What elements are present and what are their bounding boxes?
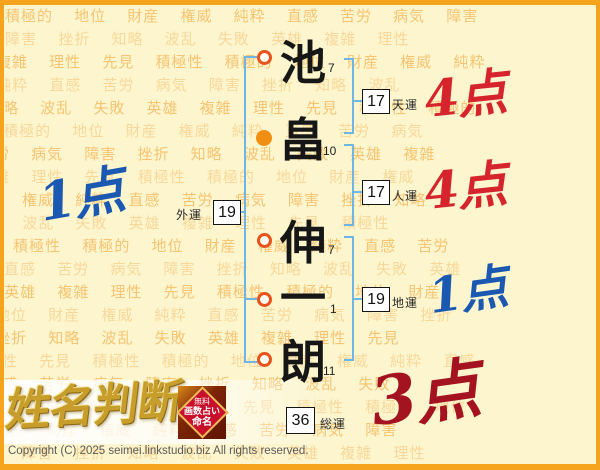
bracket-tenun-connector	[354, 100, 362, 102]
gaiun-label: 外運	[176, 206, 202, 223]
bracket-jinun-tick-top	[344, 144, 354, 146]
char-marker-circle-5	[257, 352, 272, 367]
site-logo-seimeihandan: 姓名判断	[3, 378, 184, 433]
jinun-label: 人運	[392, 187, 418, 204]
jinun-score: 4点	[420, 144, 508, 224]
tenun-label: 天運	[392, 96, 418, 113]
gaiun-score: 1点	[32, 147, 128, 235]
copyright-text: Copyright (C) 2025 seimei.linkstudio.biz…	[8, 445, 308, 457]
free-naming-badge[interactable]: 無料 画数占い 命名	[178, 386, 226, 439]
badge-line-kakusuuranai: 画数占い	[184, 406, 220, 416]
jinun-value-box: 17	[362, 180, 390, 205]
souun-value-box: 36	[286, 407, 315, 434]
badge-text: 無料 画数占い 命名	[178, 386, 226, 439]
chiun-value-box: 19	[362, 287, 390, 312]
char-marker-circle-1	[257, 50, 272, 65]
stroke-count-5: 11	[323, 364, 335, 378]
char-marker-circle-4	[257, 292, 272, 307]
stroke-count-4: 1	[330, 302, 337, 316]
souun-label: 総運	[320, 415, 346, 432]
name-char-4: 一	[278, 274, 328, 322]
char-marker-circle-3	[257, 233, 272, 248]
name-char-5: 朗	[278, 338, 328, 386]
name-char-3: 伸	[278, 219, 328, 267]
bracket-tenun-tick-bottom	[344, 132, 354, 134]
bracket-gaiun-tick-mid	[244, 298, 257, 300]
stroke-count-2: 10	[323, 144, 336, 158]
gaiun-value-box: 19	[213, 200, 241, 225]
bracket-tenun-tick-top	[344, 58, 354, 60]
tenun-value-box: 17	[362, 89, 390, 114]
seimei-handan-result-page: 積極的 地位 財産 権威 純粋 直感 苦労 病気 障害病気 障害 挫折 知略 波…	[0, 0, 600, 470]
stroke-count-3: 7	[328, 243, 335, 257]
badge-line-free: 無料	[194, 397, 210, 406]
bracket-gaiun-line	[244, 56, 246, 363]
bracket-chiun-tick-top	[344, 236, 354, 238]
bracket-jinun-tick-bottom	[344, 224, 354, 226]
bracket-jinun-connector	[354, 191, 362, 193]
char-marker-circle-2	[256, 130, 272, 146]
bracket-chiun-tick-bottom	[344, 359, 354, 361]
tenun-score: 4点	[420, 52, 508, 132]
souun-score: 3点	[364, 335, 484, 445]
name-char-1: 池	[278, 39, 328, 87]
chiun-label: 地運	[392, 294, 418, 311]
name-char-2: 畠	[278, 116, 328, 164]
bracket-jinun-line	[352, 144, 354, 226]
badge-line-meimei: 命名	[192, 417, 212, 429]
chiun-score: 1点	[424, 247, 510, 327]
bracket-tenun-line	[352, 58, 354, 134]
stroke-count-1: 7	[328, 61, 335, 75]
bracket-chiun-connector	[354, 298, 362, 300]
